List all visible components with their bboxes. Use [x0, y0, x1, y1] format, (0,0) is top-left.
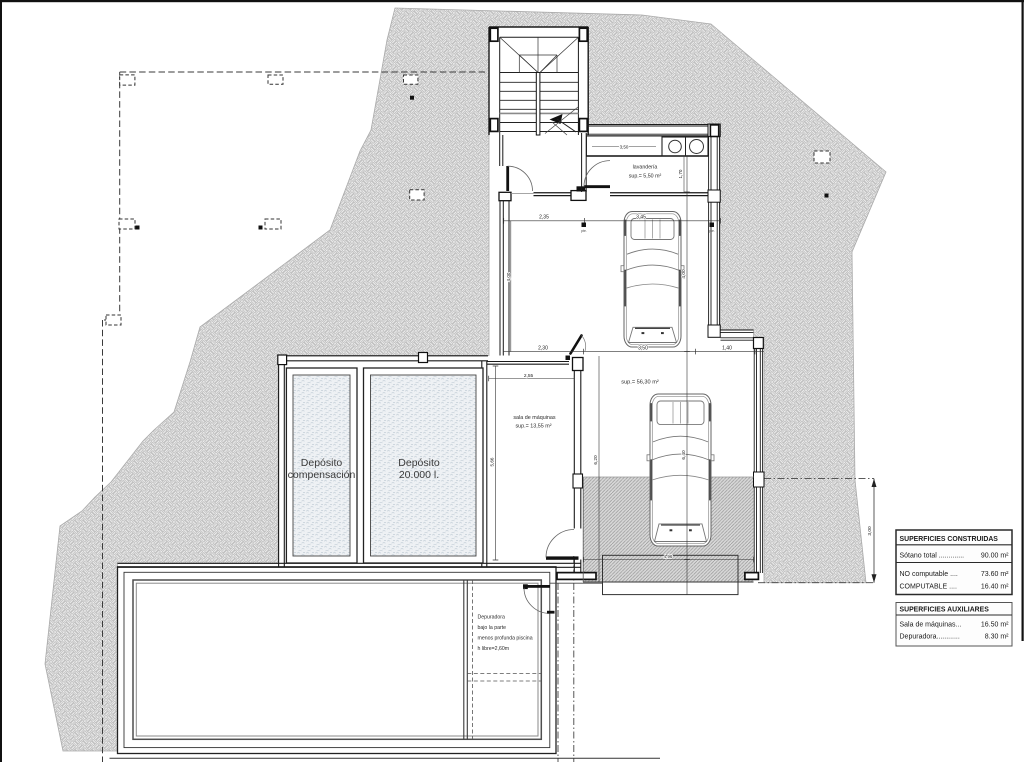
- svg-text:Depuradora: Depuradora: [478, 615, 506, 621]
- svg-text:8.30 m²: 8.30 m²: [985, 634, 1009, 641]
- svg-text:90.00 m²: 90.00 m²: [981, 553, 1009, 560]
- svg-text:h libre=2,60m: h libre=2,60m: [478, 646, 510, 652]
- svg-text:20.000 l.: 20.000 l.: [399, 469, 439, 481]
- svg-text:Sala de máquinas...: Sala de máquinas...: [900, 622, 962, 629]
- svg-text:16.50 m²: 16.50 m²: [981, 622, 1009, 629]
- svg-text:bajo la parte: bajo la parte: [478, 625, 507, 631]
- svg-text:sup.= 13,55 m²: sup.= 13,55 m²: [515, 424, 551, 430]
- svg-text:COMPUTABLE ....: COMPUTABLE ....: [900, 584, 957, 591]
- svg-text:2,30: 2,30: [538, 346, 548, 352]
- svg-text:6,20: 6,20: [593, 455, 599, 465]
- svg-text:NO computable ....: NO computable ....: [900, 571, 958, 578]
- svg-text:Depuradora............: Depuradora............: [900, 634, 960, 641]
- svg-text:73.60 m²: 73.60 m²: [981, 571, 1009, 578]
- svg-text:1,40: 1,40: [722, 346, 732, 352]
- svg-text:pte.: pte.: [581, 229, 587, 233]
- svg-text:3,00: 3,00: [867, 526, 873, 536]
- svg-text:2,55: 2,55: [524, 373, 534, 379]
- svg-text:4,00: 4,00: [681, 269, 687, 279]
- svg-text:4,96: 4,96: [664, 554, 673, 559]
- svg-text:menos profunda piscina: menos profunda piscina: [478, 636, 533, 642]
- svg-text:SUPERFICIES AUXILIARES: SUPERFICIES AUXILIARES: [900, 607, 990, 614]
- svg-text:Sótano total .............: Sótano total .............: [900, 553, 965, 560]
- svg-text:Depósito: Depósito: [301, 457, 343, 469]
- svg-text:3,50: 3,50: [620, 145, 629, 150]
- svg-text:1,70: 1,70: [678, 169, 683, 178]
- svg-text:compensación: compensación: [288, 469, 356, 481]
- svg-text:Depósito: Depósito: [398, 457, 440, 469]
- svg-text:sala de máquinas: sala de máquinas: [513, 415, 556, 421]
- svg-text:SUPERFICIES CONSTRUIDAS: SUPERFICIES CONSTRUIDAS: [900, 536, 999, 543]
- svg-text:3,45: 3,45: [636, 215, 646, 221]
- svg-text:pte.: pte.: [709, 229, 715, 233]
- svg-text:3,50: 3,50: [638, 346, 648, 352]
- svg-text:16.40 m²: 16.40 m²: [981, 584, 1009, 591]
- svg-text:lavandería: lavandería: [633, 165, 658, 171]
- svg-text:6,40: 6,40: [681, 450, 687, 460]
- svg-text:5,66: 5,66: [490, 457, 495, 466]
- svg-text:sup.= 5,50 m²: sup.= 5,50 m²: [629, 174, 662, 180]
- svg-text:sup.= 56,30 m²: sup.= 56,30 m²: [621, 380, 659, 386]
- svg-text:2,35: 2,35: [539, 215, 549, 221]
- svg-text:4,00: 4,00: [506, 272, 511, 281]
